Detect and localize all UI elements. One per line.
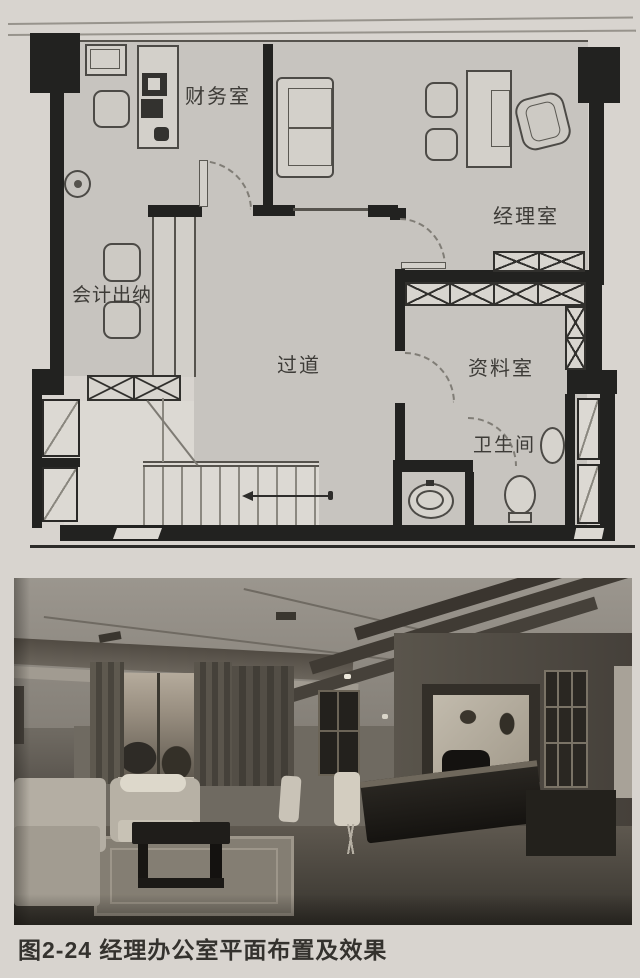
cabinet-hatch-cell — [449, 282, 495, 306]
photo-visitor-chair — [334, 772, 360, 826]
cabinet-hatch-cell — [493, 251, 540, 272]
photo-french-door-grid — [544, 742, 588, 744]
monitor-screen — [148, 78, 160, 90]
shaft-box — [577, 398, 600, 460]
room-label-bathroom: 卫生间 — [473, 430, 536, 457]
photo-curtain-panel — [232, 666, 294, 786]
chair — [103, 243, 141, 282]
cabinet-hatch-cell — [493, 282, 539, 306]
figure-caption: 图2-24 经理办公室平面布置及效果 — [18, 931, 387, 965]
shaft-box — [42, 467, 78, 522]
wall-jamb — [253, 205, 295, 216]
stairs-arrow-line — [252, 495, 328, 497]
cabinet-hatch-cell — [565, 306, 586, 339]
wall-cavity-line — [174, 217, 176, 377]
photo-ceiling-fixture — [276, 612, 296, 620]
interior-photo — [14, 578, 632, 925]
photo-desk-return — [526, 790, 616, 856]
photo-visitor-chair — [278, 775, 301, 822]
cabinet-hatch-cell — [538, 251, 585, 272]
threshold — [113, 528, 162, 539]
wall-bathroom-right — [565, 394, 575, 528]
photo-vignette-bottom — [14, 894, 632, 925]
room-label-accounting: 会计出纳 — [72, 280, 152, 307]
toilet-bowl — [504, 475, 536, 515]
photo-art-branch — [452, 702, 484, 732]
floor-plan: 财务室 经理室 会计出纳 过道 资料室 卫生间 — [0, 0, 640, 565]
wall-right-upper — [589, 103, 604, 285]
top-line — [8, 30, 636, 36]
photo-coffee-table-leg — [138, 844, 148, 882]
wash-basin-inner — [416, 490, 444, 510]
wall-jamb — [148, 205, 202, 217]
floor-fixture-dot — [74, 180, 82, 188]
book-page: { "figure": { "caption": "图2-24 经理办公室平面布… — [0, 0, 640, 978]
photo-window-far — [318, 690, 360, 776]
photo-french-door-grid — [571, 670, 573, 788]
cabinet-hatch-cell — [537, 282, 586, 306]
photo-french-door-grid — [557, 670, 559, 788]
top-line — [8, 16, 633, 25]
photo-coffee-table-shelf — [138, 878, 224, 888]
sofa-divider — [289, 127, 331, 129]
corner-basin — [540, 427, 565, 464]
wall-alcove-left — [393, 472, 402, 528]
wall-alcove-right — [465, 472, 474, 528]
wall-left — [50, 93, 64, 369]
shaft-divider — [32, 458, 80, 467]
manager-desk-inner — [491, 90, 510, 147]
room-label-finance: 财务室 — [185, 80, 251, 109]
photo-light-dot — [344, 674, 351, 679]
shaft-box — [577, 464, 600, 524]
stairs-upper-line — [162, 398, 164, 462]
room-label-archive: 资料室 — [468, 352, 534, 381]
photo-window-mullion — [157, 673, 160, 779]
door-leaf-manager — [401, 262, 446, 269]
shaft-box — [42, 399, 80, 457]
wall-corridor-right-lower — [395, 403, 405, 460]
column-top-left — [30, 33, 80, 93]
photo-french-door-grid — [544, 706, 588, 708]
partition-finance — [263, 44, 273, 207]
bottom-line — [30, 545, 635, 548]
photo-french-door — [544, 670, 588, 788]
mouse — [154, 127, 169, 141]
photo-chair-legs — [336, 824, 366, 854]
photo-light-dot — [382, 714, 388, 719]
threshold — [574, 528, 604, 539]
wall-left-block — [32, 369, 64, 395]
wall-right-mid — [585, 272, 602, 370]
wall-right-block — [567, 370, 617, 394]
room-label-corridor: 过道 — [277, 349, 321, 378]
photo-vignette-left — [14, 578, 30, 925]
cabinet-hatch-cell — [405, 282, 451, 306]
photo-art-branch — [492, 704, 522, 748]
wall-thin — [293, 208, 370, 211]
cabinet-hatch-cell — [87, 375, 135, 401]
guest-chair — [425, 82, 458, 118]
computer — [141, 99, 163, 118]
photo-curtain-right — [194, 662, 232, 786]
photo-window-far-mullion — [337, 690, 339, 776]
wall-right-lower — [600, 394, 615, 534]
stairs-arrow-tick — [328, 491, 333, 500]
wall-bath-counter — [393, 460, 473, 472]
basin-faucet — [426, 480, 434, 486]
door-leaf-finance — [199, 160, 208, 207]
cabinet-hatch-cell — [133, 375, 181, 401]
photo-right-edge-wall — [614, 666, 632, 798]
photo-armchair-cushion — [120, 774, 186, 792]
cabinet-inner — [90, 49, 120, 69]
photo-coffee-table — [132, 822, 230, 844]
photo-curtain-left — [90, 662, 124, 784]
column-top-right — [578, 47, 620, 103]
guest-chair — [425, 128, 458, 161]
cabinet-hatch-cell — [565, 337, 586, 370]
top-wall-line — [64, 40, 588, 42]
toilet-tank — [508, 512, 532, 523]
chair — [93, 90, 130, 128]
photo-window-far-mullion — [318, 730, 360, 732]
room-label-manager: 经理室 — [493, 200, 559, 229]
